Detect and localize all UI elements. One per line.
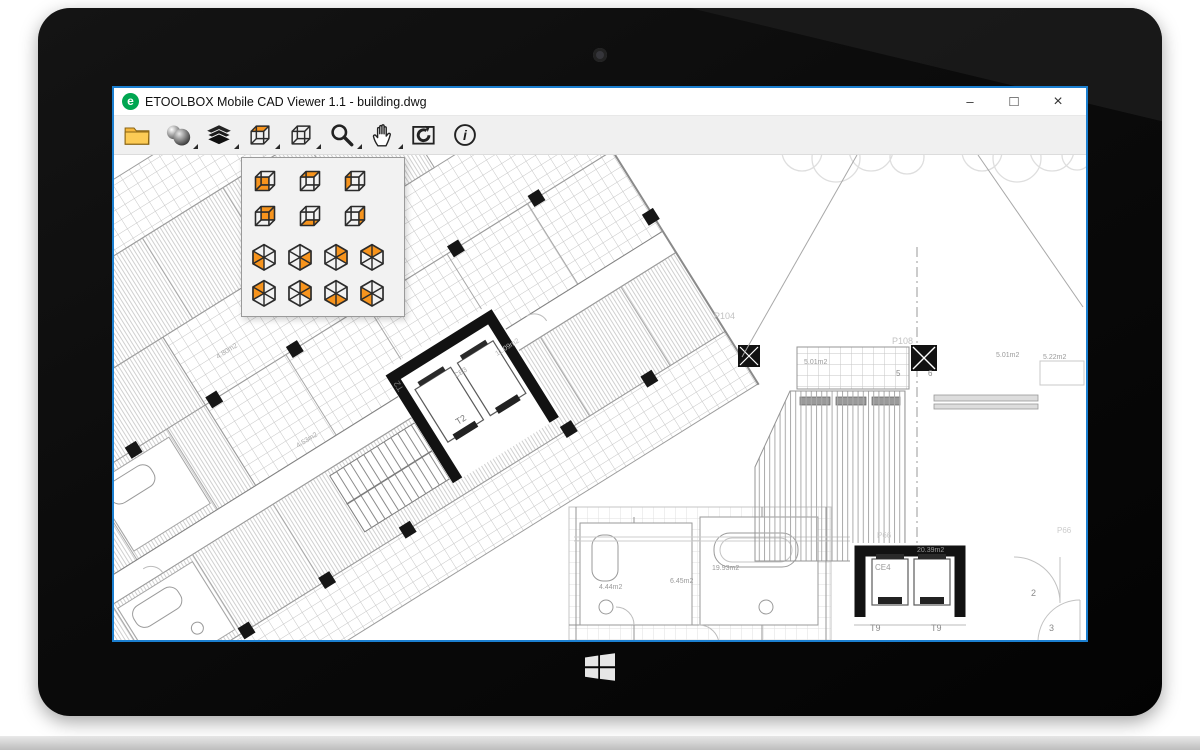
plan-label: P104 xyxy=(714,311,735,321)
sw-isometric-button[interactable] xyxy=(249,242,279,272)
view-3d-button[interactable] xyxy=(284,119,318,151)
spheres-icon xyxy=(164,122,192,148)
open-file-button[interactable] xyxy=(120,119,154,151)
isometric-views-grid xyxy=(242,233,404,310)
window-title: ETOOLBOX Mobile CAD Viewer 1.1 - buildin… xyxy=(145,95,427,109)
revision-clouds xyxy=(782,155,1086,182)
plan-label: 20.39m2 xyxy=(917,547,944,554)
plan-label: T9 xyxy=(931,623,942,633)
plan-label: CE4 xyxy=(875,563,891,572)
dropdown-arrow-icon xyxy=(398,144,403,149)
orthographic-views-grid xyxy=(242,162,404,233)
door-swings-right xyxy=(1014,557,1080,642)
standard-views-panel xyxy=(241,157,405,317)
balcony-grid xyxy=(797,347,909,389)
close-button[interactable]: × xyxy=(1036,93,1080,111)
sw-isometric-bottom-button[interactable] xyxy=(249,278,279,308)
ne-isometric-bottom-button[interactable] xyxy=(321,278,351,308)
plan-label: 6.45m2 xyxy=(670,578,693,585)
bottom-view-button[interactable] xyxy=(296,202,324,230)
dropdown-arrow-icon xyxy=(275,144,280,149)
plan-label: 4.44m2 xyxy=(599,584,622,591)
top-view-button[interactable] xyxy=(296,167,324,195)
app-window: e ETOOLBOX Mobile CAD Viewer 1.1 - build… xyxy=(112,86,1088,642)
info-icon: i xyxy=(451,122,479,148)
maximize-button[interactable]: □ xyxy=(992,93,1036,110)
folder-icon xyxy=(123,122,151,148)
leader-lines xyxy=(742,155,1083,357)
windows-home-button[interactable] xyxy=(583,650,617,684)
svg-text:i: i xyxy=(463,127,468,143)
drawing-canvas[interactable]: P104P108P66P665.01m25.01m25.22m219.93m22… xyxy=(114,155,1086,642)
desk-edge xyxy=(0,736,1200,750)
plan-label: 19.93m2 xyxy=(712,565,739,572)
right-view-button[interactable] xyxy=(341,202,369,230)
se-isometric-button[interactable] xyxy=(285,242,315,272)
plan-label: 2 xyxy=(1031,588,1036,598)
plan-label: P108 xyxy=(892,336,913,346)
back-view-button[interactable] xyxy=(251,202,279,230)
plan-label: 5 xyxy=(896,369,901,378)
front-camera xyxy=(593,48,607,62)
plan-label: 5.01m2 xyxy=(996,352,1019,359)
standard-views-button[interactable] xyxy=(243,119,277,151)
nw-isometric-bottom-button[interactable] xyxy=(357,278,387,308)
layers-button[interactable] xyxy=(202,119,236,151)
front-view-button[interactable] xyxy=(251,167,279,195)
plan-label: P66 xyxy=(1057,526,1072,535)
render-mode-button[interactable] xyxy=(161,119,195,151)
plan-label: 6 xyxy=(928,369,933,378)
plan-label: 5.01m2 xyxy=(804,359,827,366)
plan-label: P66 xyxy=(877,531,892,540)
cube-wire-icon xyxy=(287,122,315,148)
magnifier-icon xyxy=(328,122,356,148)
minimize-button[interactable]: – xyxy=(948,94,992,109)
se-isometric-bottom-button[interactable] xyxy=(285,278,315,308)
plan-label: T9 xyxy=(870,623,881,633)
title-bar[interactable]: e ETOOLBOX Mobile CAD Viewer 1.1 - build… xyxy=(114,88,1086,116)
screenshot-stage: e ETOOLBOX Mobile CAD Viewer 1.1 - build… xyxy=(0,0,1200,750)
rotate-view-button[interactable] xyxy=(407,119,441,151)
plan-label: 5.22m2 xyxy=(1043,354,1066,361)
ne-isometric-button[interactable] xyxy=(321,242,351,272)
dropdown-arrow-icon xyxy=(234,144,239,149)
about-button[interactable]: i xyxy=(448,119,482,151)
left-view-button[interactable] xyxy=(341,167,369,195)
pan-button[interactable] xyxy=(366,119,400,151)
dropdown-arrow-icon xyxy=(193,144,198,149)
app-logo-icon: e xyxy=(122,93,139,110)
dropdown-arrow-icon xyxy=(357,144,362,149)
zoom-button[interactable] xyxy=(325,119,359,151)
layers-icon xyxy=(205,122,233,148)
rotate-icon xyxy=(410,122,438,148)
hand-icon xyxy=(369,122,397,148)
dropdown-arrow-icon xyxy=(316,144,321,149)
cube-solid-icon xyxy=(246,122,274,148)
nw-isometric-button[interactable] xyxy=(357,242,387,272)
toolbar: i xyxy=(114,116,1086,155)
elevator-core-ce4 xyxy=(850,543,966,625)
windows-logo-icon xyxy=(585,653,615,681)
window-controls: – □ × xyxy=(948,93,1080,111)
plan-label: 3 xyxy=(1049,623,1054,633)
